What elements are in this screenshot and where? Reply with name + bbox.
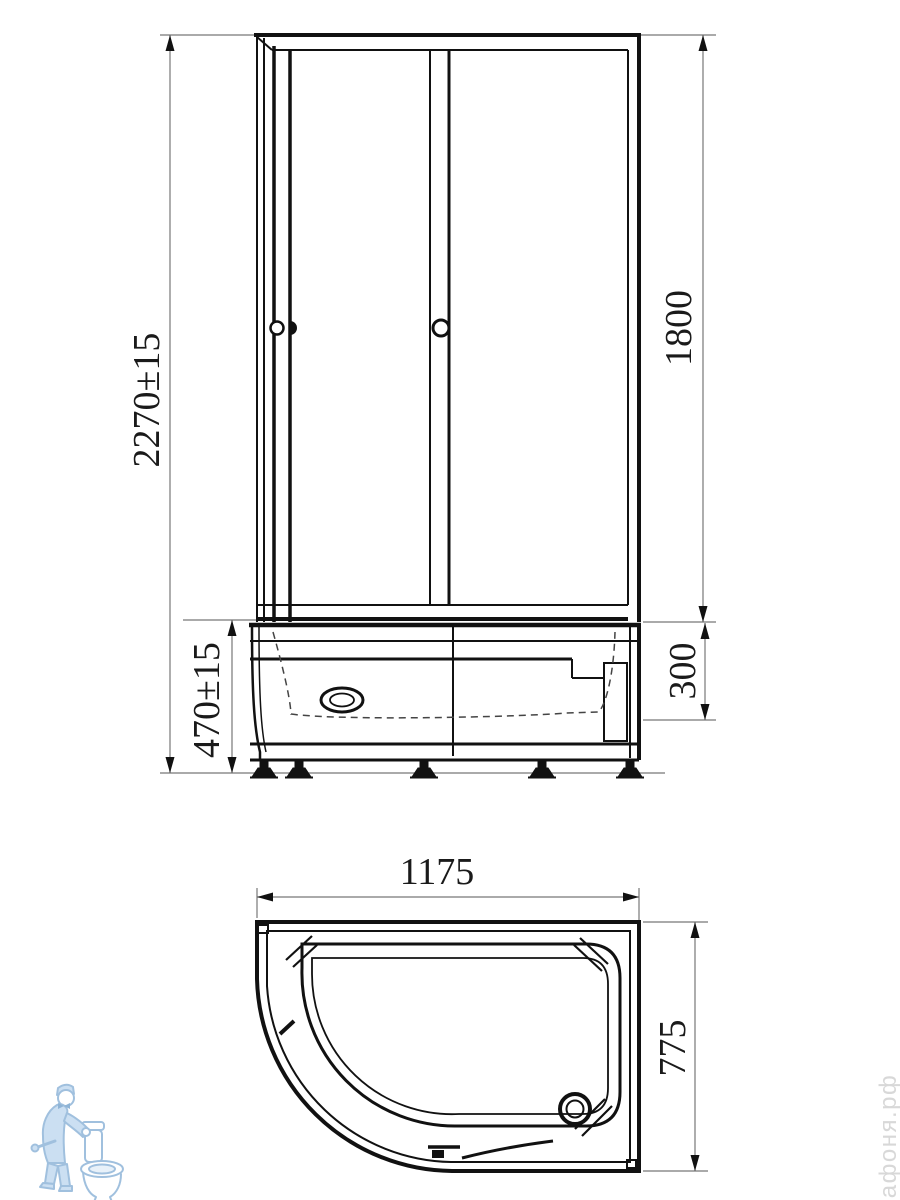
door-knob-left-icon [271,321,298,335]
plumber-toilet-logo [32,1085,124,1200]
shower-tray-front [249,625,641,760]
outer-contour [257,922,639,1171]
tray-rim-outer [302,944,620,1126]
door-knob-right-icon [433,320,449,336]
dimension-plan-width: 1175 [257,851,639,902]
adjustable-feet [250,760,644,778]
plan-width-label: 1175 [400,851,475,893]
cabin-height-label: 1800 [658,290,700,366]
tray-upper-section-label: 300 [662,643,704,700]
door-handle-plan [428,1141,553,1158]
extension-lines [160,35,716,1171]
drain-cover-oval [321,688,363,712]
top-rail [254,35,641,50]
watermark-site-text: афоня.рф [875,1074,900,1198]
front-view-drawing [249,35,644,778]
plan-view-drawing [257,922,639,1171]
tray-height-label: 470±15 [186,642,228,758]
drawing-canvas: 2270±15 1800 470±15 300 1175 775 [0,0,900,1200]
dimension-plan-depth: 775 [652,922,700,1171]
service-hatch [604,663,627,741]
technical-drawing-page: 2270±15 1800 470±15 300 1175 775 [0,0,900,1200]
plan-depth-label: 775 [652,1020,694,1077]
dimension-tray-height: 470±15 [186,620,237,773]
dimension-tray-upper-section: 300 [662,623,710,720]
overall-height-label: 2270±15 [126,333,168,468]
wall-profile-clip [280,1021,294,1034]
dimension-cabin-height: 1800 [658,35,708,622]
dimension-overall-height: 2270±15 [126,35,175,773]
drain-plan-circle [560,1094,590,1124]
